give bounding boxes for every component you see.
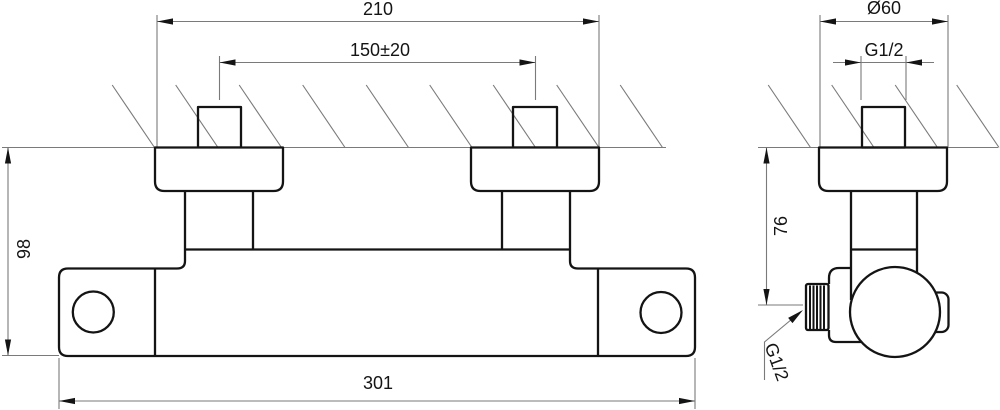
dim-label-overall-width: 210 (363, 0, 393, 19)
inlet-nut-side (862, 107, 905, 148)
arrow-icon (763, 148, 769, 164)
arrow-icon (906, 59, 922, 65)
arrow-icon (679, 398, 695, 404)
inlet-nut-right (513, 107, 557, 148)
arrow-icon (220, 59, 236, 65)
hatch-line (430, 85, 472, 148)
dim-label-escutcheon-diameter: Ø60 (867, 0, 901, 18)
hatch-line (895, 85, 937, 148)
arrow-icon (5, 148, 11, 164)
dim-label-body-height: 98 (14, 239, 34, 259)
escutcheon-side (819, 148, 947, 192)
side-mixer-body (806, 107, 949, 357)
arrow-icon (788, 307, 805, 323)
hatch-line (366, 85, 408, 148)
dim-label-outlet-drop: 76 (771, 216, 791, 236)
arrow-icon (583, 18, 599, 24)
front-view: 210 150±20 301 98 (2, 0, 695, 409)
hatch-line (768, 85, 810, 148)
hatch-line (557, 85, 599, 148)
front-mixer-body (59, 107, 695, 356)
body-cross-section (850, 267, 940, 357)
hatch-line (112, 85, 154, 148)
escutcheon-left (155, 148, 283, 192)
arrow-icon (59, 398, 75, 404)
front-labels: 210 150±20 301 98 (14, 0, 410, 393)
arrow-icon (932, 18, 948, 24)
mixer-dimension-drawing: 210 150±20 301 98 (0, 0, 1000, 410)
handle-end-right (641, 292, 682, 333)
arrow-icon (520, 59, 536, 65)
arrow-icon (157, 18, 173, 24)
front-arrowheads (5, 18, 695, 404)
hatch-line (239, 85, 281, 148)
dim-label-inlet-thread: G1/2 (864, 40, 903, 60)
dim-label-inlet-spacing: 150±20 (350, 40, 410, 60)
hatch-line (957, 85, 999, 148)
dim-label-outlet-thread: G1/2 (761, 340, 793, 384)
arrow-icon (845, 59, 861, 65)
dim-label-body-length: 301 (363, 373, 393, 393)
arrow-icon (820, 18, 836, 24)
hatch-line (303, 85, 345, 148)
wall-hatching-front (112, 85, 662, 148)
arrow-icon (763, 289, 769, 305)
escutcheon-right (471, 148, 599, 192)
arrow-icon (5, 340, 11, 356)
technical-drawing-page: 210 150±20 301 98 (0, 0, 1000, 410)
s-union-necks (185, 191, 570, 250)
hatch-line (493, 85, 535, 148)
wall-hatching-side (768, 85, 999, 148)
front-dimension-lines (2, 15, 695, 409)
hatch-line (620, 85, 662, 148)
handle-end-left (73, 292, 114, 333)
hatch-line (832, 85, 874, 148)
side-view: Ø60 G1/2 76 G1/2 (758, 0, 999, 384)
